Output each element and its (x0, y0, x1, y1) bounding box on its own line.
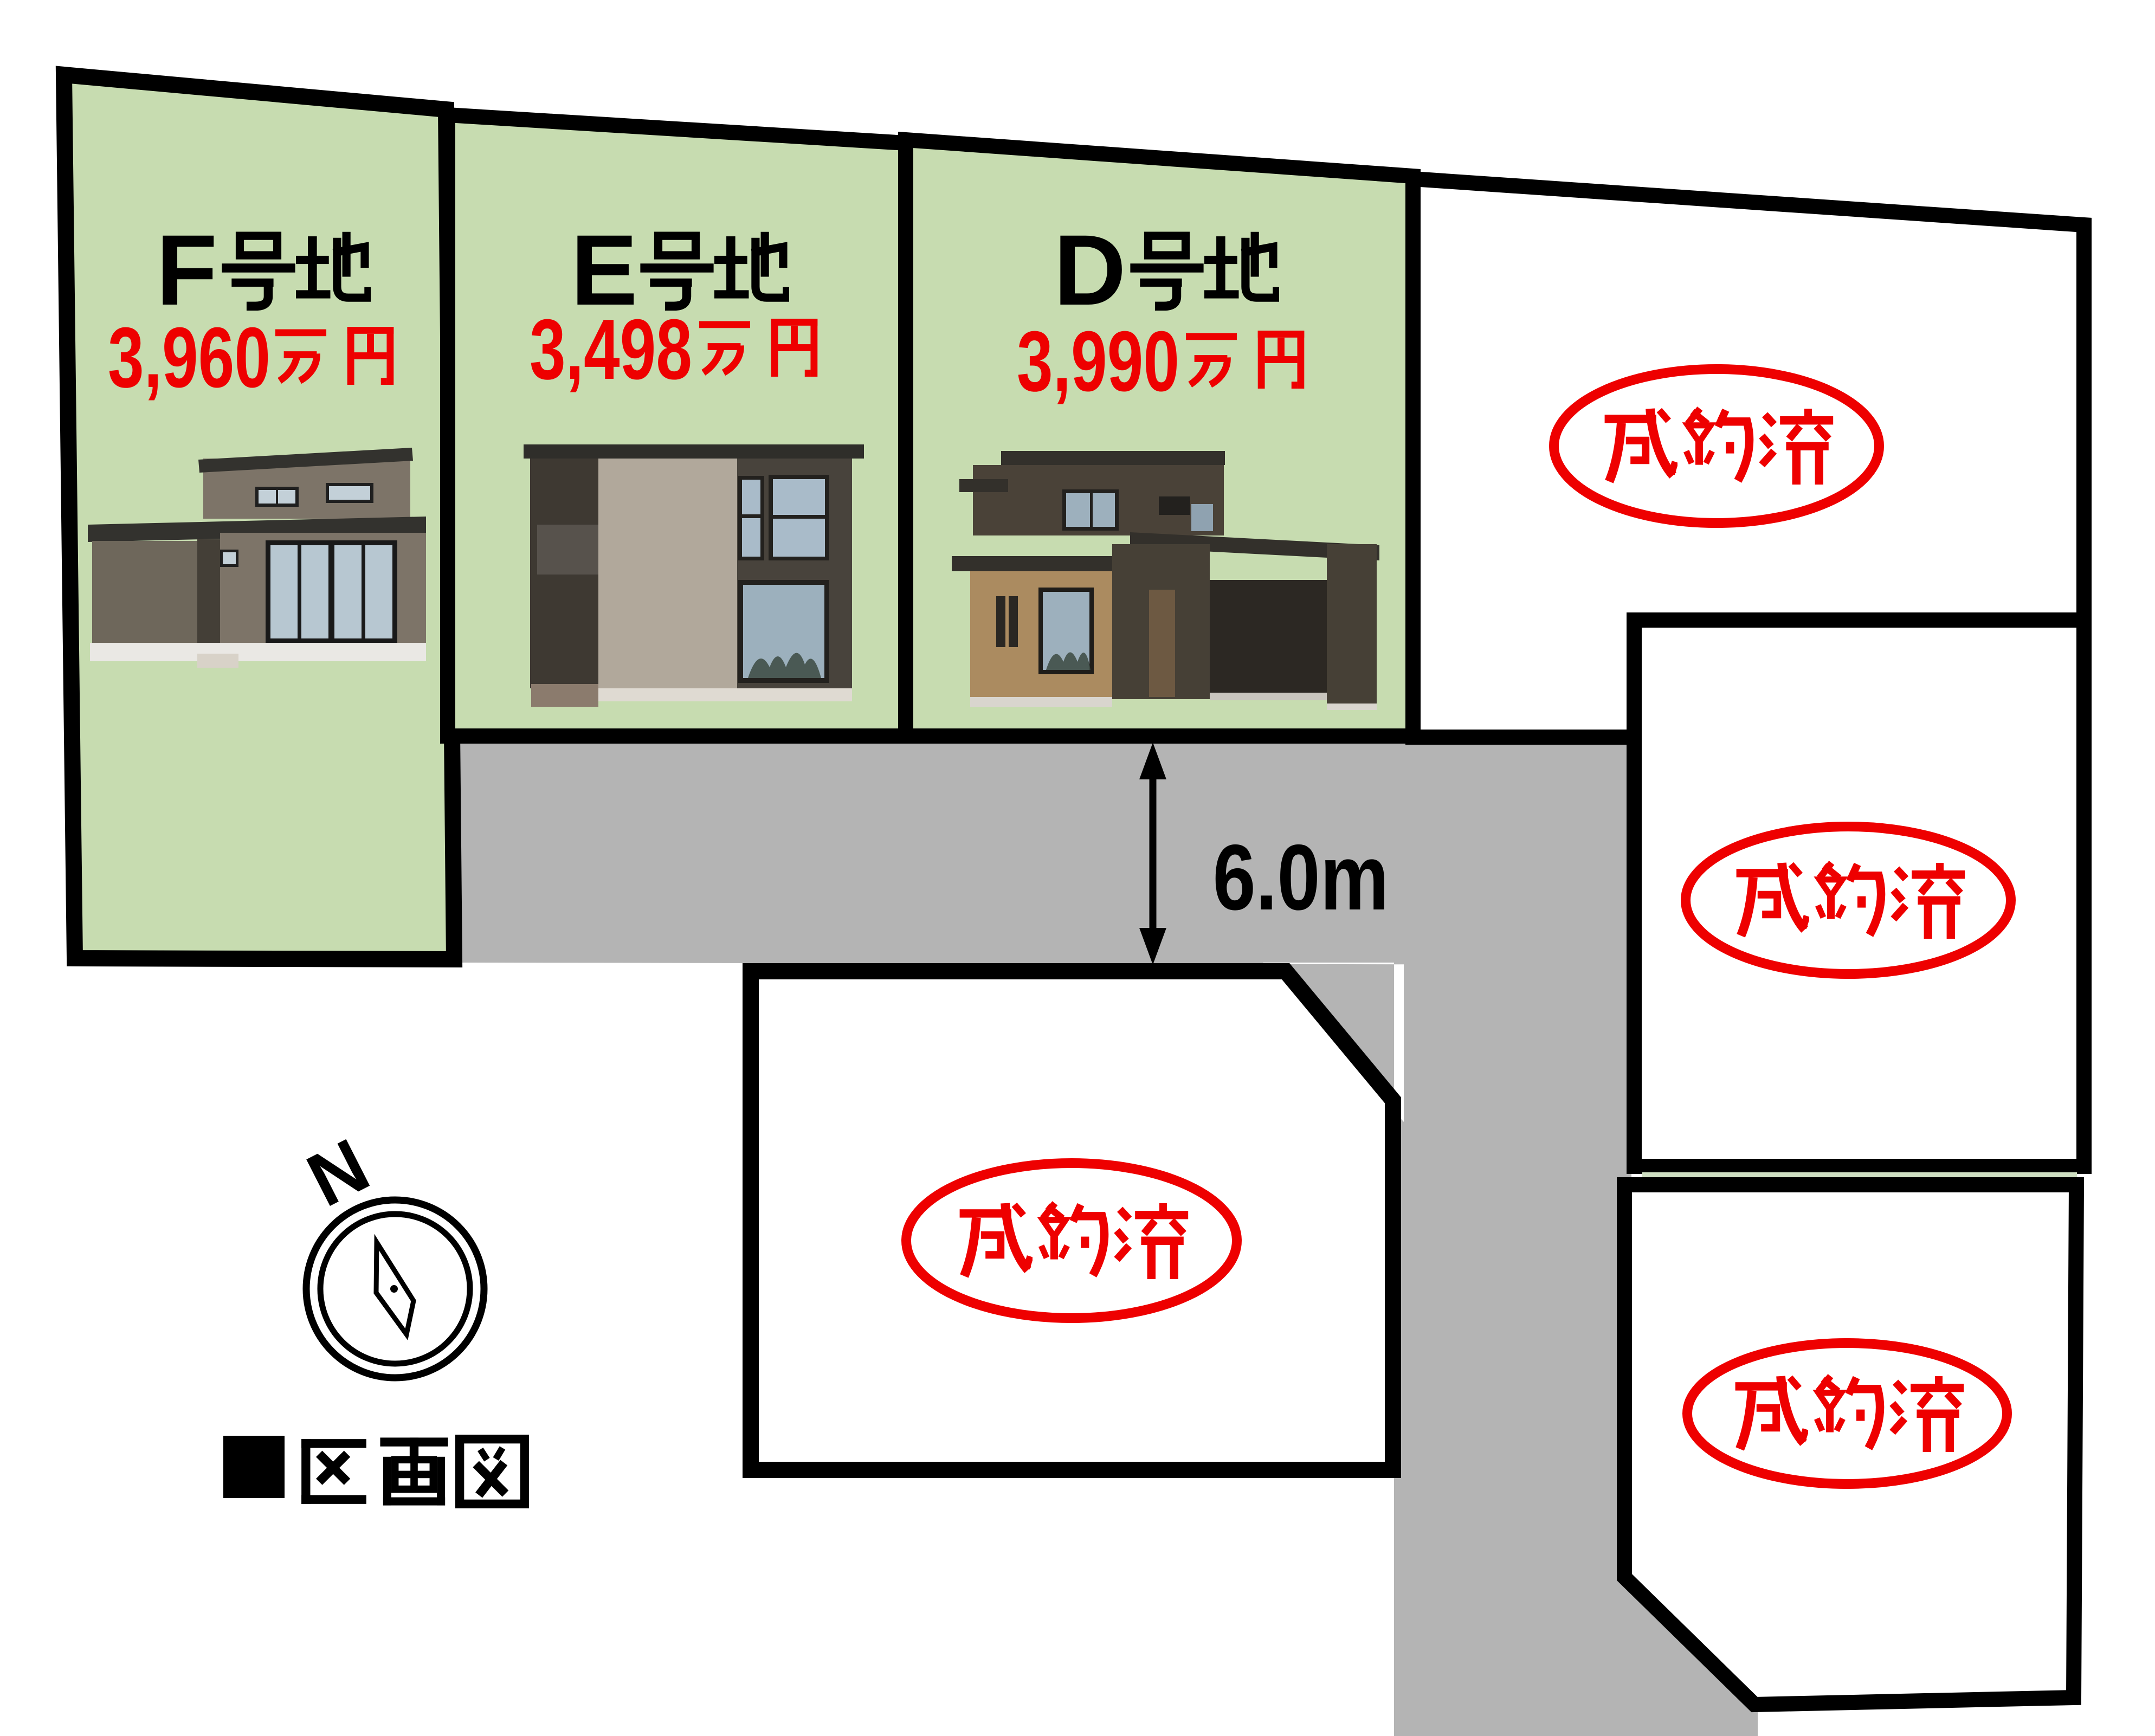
svg-text:3,498: 3,498 (530, 302, 692, 397)
svg-text:D: D (1054, 215, 1126, 326)
svg-text:3,990: 3,990 (1017, 314, 1179, 409)
svg-text:3,960: 3,960 (108, 310, 270, 405)
svg-text:6.0m: 6.0m (1213, 825, 1389, 930)
